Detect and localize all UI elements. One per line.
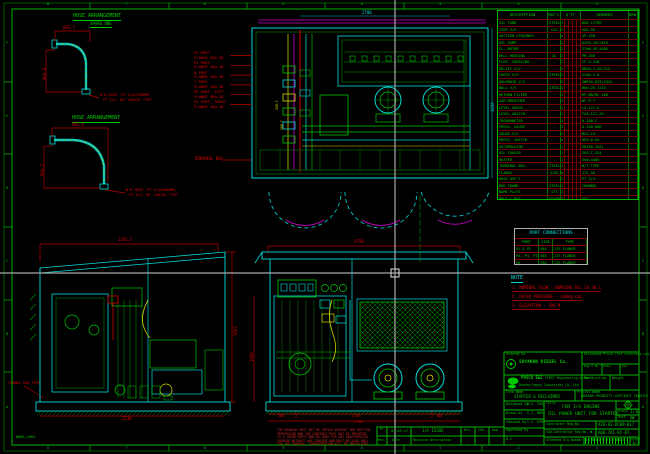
port-conn-row: P1 & P250AJIS FLANGE	[515, 245, 587, 252]
bom-cell	[629, 196, 638, 201]
ruler-letter-left: A	[6, 406, 8, 410]
bom-cell: HED-8-OA	[581, 137, 629, 143]
bom-cell: 0-100'C	[581, 118, 629, 124]
bom-cell: AL	[548, 53, 561, 59]
note-item: 1. NOMINAL FLOW - WORKING OIL 50 40 L	[512, 286, 601, 292]
revision-desc: 1st ISSUE	[422, 429, 444, 433]
bom-cell: STEEL	[548, 85, 561, 91]
port-conn-header-row: PORTSIZETYPE	[515, 238, 587, 245]
bom-cell	[629, 66, 638, 72]
bom-cell: BALL V/V	[498, 85, 548, 91]
tb-stamp-icon: ✱	[590, 430, 592, 434]
hose-arrangement-2	[44, 128, 125, 193]
tb-sign-name: Y.S. KIM	[527, 421, 543, 425]
front-view	[254, 246, 473, 421]
bom-cell: TERMINAL BOX	[498, 163, 548, 169]
tb-weight-label: Weight	[612, 377, 624, 380]
bom-row: FLANGES25C6JIS 5K	[498, 169, 638, 176]
bom-cell: -	[548, 157, 561, 163]
bom-cell: FLANGE	[498, 170, 548, 176]
bom-cell: -	[548, 46, 561, 52]
tb-matl-value: -	[598, 382, 600, 386]
port-conn-cell: 50A	[539, 246, 553, 252]
bom-row: RELIEF V/V-2DB20-2-50/315	[498, 65, 638, 72]
tb-matl-label: Mat'l	[584, 377, 594, 380]
bom-cell: -	[548, 118, 561, 124]
bom-cell: CF-A-110	[581, 59, 629, 65]
tb-est-label: Estimated Price (for reference use)	[584, 353, 650, 356]
bom-cell: BKH-20-1113	[581, 85, 629, 91]
notes-title: NOTE	[511, 276, 523, 283]
bom-row: TERMINAL BOXSTEEL1W/T TYPE	[498, 162, 638, 169]
ruler-letter-right: E	[642, 115, 644, 119]
tb-mini-label: Date	[603, 365, 610, 368]
bom-cell	[629, 20, 638, 26]
tb-unit-label: Unit	[618, 416, 626, 419]
plan-dim-right: 1650	[491, 102, 495, 112]
bom-cell: SS400	[548, 196, 561, 201]
bom-cell: -	[548, 92, 561, 98]
port-conn-cell: P6	[515, 260, 539, 265]
side-view	[24, 244, 236, 416]
bom-cell	[629, 111, 638, 117]
tb-sign-name: S.I. WOO	[527, 412, 543, 416]
bom-row: HEATER-13kW-440V	[498, 156, 638, 163]
bom-cell: FLEX. COUPLING	[498, 59, 548, 65]
ruler-letter-left: C	[6, 260, 8, 264]
bom-cell: -	[548, 150, 561, 156]
bom-cell: BV2-10	[581, 131, 629, 137]
bom-cell: EL. MOTOR	[498, 46, 548, 52]
bom-row: PRESS. SWITCH-2HED-8-OA	[498, 136, 638, 143]
tb-sign-label: Approved by	[506, 429, 528, 433]
bom-cell: BF-P-7	[581, 98, 629, 104]
bom-cell: SUS-T-424	[581, 150, 629, 156]
ruler-number-top: 5	[282, 3, 284, 7]
bom-cell	[629, 170, 638, 176]
bom-cell: CAC	[548, 27, 561, 33]
tb-contractor-value: ATD-03-DC09-017	[598, 423, 634, 427]
bom-cell: -	[548, 66, 561, 72]
ruler-letter-right: C	[642, 260, 644, 264]
front-dim-top: 2750	[354, 240, 364, 244]
hose-arrangement-1	[46, 31, 99, 98]
tb-est-value: -	[608, 358, 610, 362]
bom-row: BOLT & NUTSS4001SET	[498, 195, 638, 201]
bom-cell: STEEL	[548, 183, 561, 189]
bom-cell: 3kW-440V	[581, 157, 629, 163]
bom-row: LEVEL GAUGE-1LS-127-A	[498, 104, 638, 111]
tb-subcontractor-label: Sub-Contractor Reg.No.	[546, 431, 588, 434]
ruler-letter-left: F	[6, 42, 8, 46]
revision-col-rev: Rev.	[378, 439, 386, 442]
bom-cell: RETURN FILTER	[498, 92, 548, 98]
bom-cell: HEATER	[498, 157, 548, 163]
hose1-subtitle: SPARE ONE	[90, 22, 112, 28]
ruler-number-bottom: 2	[517, 447, 519, 451]
posco-logo-icon	[508, 378, 519, 385]
bom-cell: PM-350	[581, 53, 629, 59]
side-flange-label: FLANGE 50A TYPE	[8, 382, 40, 386]
port-flange-label: FLANGE 50A-5K	[194, 105, 224, 109]
bom-cell: 800 LITER	[581, 20, 629, 26]
bom-cell: -	[548, 131, 561, 137]
bom-cell	[629, 53, 638, 59]
bom-cell: -	[548, 111, 561, 117]
port-conn-cell: JIS FLANGE	[553, 260, 587, 265]
bom-table: DESCRIPTIONMAT'LQ'TYREMARKSDRW'G NOOIL T…	[497, 10, 639, 200]
bom-cell: -	[581, 189, 629, 195]
bom-cell	[629, 163, 638, 169]
tb-sign-name: H.S. CHA	[527, 403, 543, 407]
revision-col-date: Date	[392, 439, 400, 442]
bom-cell: STEEL	[548, 20, 561, 26]
plan-dim-a: 150.3	[276, 100, 279, 110]
ruler-number-bottom: 4	[361, 447, 363, 451]
bom-row: OIL TANKSTEEL1800 LITER	[498, 19, 638, 26]
hose2-dim-w: 905.5	[72, 123, 84, 127]
front-dim-total: 2750	[354, 421, 362, 425]
bom-cell	[629, 72, 638, 78]
revision-sign-val: -	[481, 439, 483, 443]
bom-cell: 37kW-4P-440V	[581, 46, 629, 52]
bom-cell: STOP V/V	[498, 27, 548, 33]
port-connections-title: PORT CONNECTIONS	[515, 229, 587, 238]
bom-cell	[629, 59, 638, 65]
bom-cell: CHECK V/V	[498, 72, 548, 78]
revision-date: '04.03.17	[389, 430, 408, 434]
tb-eng-brand: POSCO E&C	[521, 376, 543, 380]
tb-std-label: Standard Drg Number	[546, 439, 582, 442]
hose1-dim-w: 605.7	[63, 26, 75, 30]
ruler-number-top: 6	[204, 3, 206, 7]
bom-cell	[629, 27, 638, 33]
bom-cell: LEVEL SWITCH	[498, 111, 548, 117]
ruler-number-top: 1	[596, 3, 598, 7]
bom-cell: -	[548, 144, 561, 150]
ruler-letter-right: A	[642, 406, 644, 410]
door-swing-arcs	[269, 192, 489, 262]
bom-cell	[629, 118, 638, 124]
port-conn-cell: P3, P4, P5	[515, 253, 539, 259]
ruler-number-bottom: 6	[204, 447, 206, 451]
port-conn-row: P625AJIS FLANGE	[515, 259, 587, 265]
tb-mini-label: Dwg'd By	[584, 365, 598, 368]
port-conn-header-cell: SIZE	[539, 239, 553, 245]
bom-cell	[629, 33, 638, 39]
bom-cell: HOSE ASS'Y	[498, 176, 548, 182]
bom-cell	[629, 137, 638, 143]
ruler-letter-left: B	[6, 333, 8, 337]
bom-cell	[629, 92, 638, 98]
ruler-number-top: 4	[361, 3, 363, 7]
bom-row: LEVEL SWITCH-1FSA-127-2X	[498, 110, 638, 117]
bom-header-cell: DESCRIPTION	[498, 11, 548, 19]
bom-cell: NAME PLATE	[498, 189, 548, 195]
warning-line: FOR THE PURPOSE. CONTRAVENTION WILL BE P…	[277, 443, 370, 446]
tb-ordered-label: Ordered by	[506, 353, 525, 356]
bom-cell: FSA-127-2X	[581, 111, 629, 117]
bom-cell: OIL COOLER	[498, 150, 548, 156]
front-dim-b1: 300	[278, 415, 284, 419]
corner-label: WORK-2004	[16, 436, 35, 440]
ruler-letter-right: F	[642, 42, 644, 46]
tb-mini-value: -	[609, 370, 611, 374]
bom-cell: -	[548, 98, 561, 104]
bom-cell	[629, 189, 638, 195]
revision-sign-val: -	[495, 439, 497, 443]
bom-row: NAME PLATESTS1-	[498, 188, 638, 195]
bom-row: PRESS. GAUGE-30-250 BAR	[498, 123, 638, 130]
bom-cell: THERMOMETER	[498, 118, 548, 124]
tb-title-line2: OIL POWER UNIT FOR STARTER	[548, 413, 618, 418]
bom-cell: -	[548, 137, 561, 143]
bom-cell: STS	[548, 189, 561, 195]
bom-cell: JIS 5K	[581, 170, 629, 176]
note-item: 3. ELEVATION : 700 M	[512, 304, 560, 310]
bom-row: HOSE ASS'Y-2PT 3/4	[498, 175, 638, 182]
port-flange-label: FLANGE 50A-5K	[194, 56, 224, 60]
bom-cell: PT 3/4	[581, 176, 629, 182]
ruler-number-bottom: 3	[439, 447, 441, 451]
tb-mini-value: -	[628, 370, 630, 374]
ruler-number-bottom: 8	[47, 447, 49, 451]
ruler-letter-right: B	[642, 333, 644, 337]
port-conn-header-cell: PORT	[515, 239, 539, 245]
tb-eng-name: FIRST Engineering & Construction	[545, 377, 606, 380]
bom-cell: A2F0-107/61R	[581, 40, 629, 46]
bom-header-cell: DRW'G NO	[629, 11, 638, 19]
port-conn-cell: JIS FLANGE	[553, 246, 587, 252]
side-dim-bottom: 2130	[122, 417, 132, 421]
revision-sign-col: Drw	[464, 429, 470, 432]
bom-row: BALL V/VSTEEL4BKH-20-1113	[498, 84, 638, 91]
bom-row: OIL COOLER-1SUS-T-424	[498, 149, 638, 156]
bom-cell: BELL HOUSING	[498, 53, 548, 59]
hose2-dim-h: 550.7	[41, 164, 45, 176]
tb-sign-label: Designed by	[506, 403, 528, 407]
tb-sign-label: Q.C.	[506, 438, 514, 442]
tb-item-value: STARTER & RECLAIMER	[514, 395, 560, 399]
ruler-number-bottom: 5	[282, 447, 284, 451]
bom-header-cell: Q'TY	[561, 11, 581, 19]
bom-row: OIL PUMP-2A2F0-107/61R	[498, 39, 638, 46]
tb-scale-value: 1/10	[630, 410, 640, 414]
tb-sign-label: Drawn by	[506, 412, 522, 416]
port-conn-cell: 40A	[539, 253, 553, 259]
tb-sign-label: Checked by	[506, 421, 526, 425]
bom-cell: SP-100	[581, 33, 629, 39]
revision-sign-val: -	[467, 439, 469, 443]
plan-dim-top: 2700	[362, 11, 372, 15]
bom-cell	[629, 98, 638, 104]
bom-cell: LS-127-A	[581, 105, 629, 111]
tb-barcode: 170409417064130	[585, 438, 629, 444]
bom-row: ACCUMULATOR-1SB330-32A1	[498, 143, 638, 150]
tb-sign-name: -	[527, 429, 529, 433]
tb-mini-label: Rev.	[622, 365, 629, 368]
hose2-note-2: PT 3/4, 90' SWIVEL TYPE	[129, 194, 177, 198]
revision-sign-col: App	[492, 429, 498, 432]
hose1-note-2: PT 3/4, 90' SWIVEL TYPE	[103, 99, 151, 103]
bom-header-row: DESCRIPTIONMAT'LQ'TYREMARKSDRW'G NO	[498, 11, 638, 19]
bom-cell: 4WE10-D33/CG24	[581, 79, 629, 85]
bom-row: EL. MOTOR-237kW-4P-440V	[498, 45, 638, 52]
bom-row: SUCTION STRAINER-2SP-100	[498, 32, 638, 39]
ruler-number-top: 2	[517, 3, 519, 7]
hose1-dim-h: 450.8	[43, 68, 47, 80]
tb-weight-value: -	[628, 382, 630, 386]
bom-row: BED FRAMESTEEL1CHANNEL	[498, 182, 638, 189]
tb-unit-value: mm	[630, 416, 635, 420]
side-dim-right: 1563	[234, 326, 238, 336]
tb-project-value: DOOSAN PRIORITY-AIRTIGHT SERVICE	[581, 395, 648, 399]
tb-scale-label: Scale	[618, 410, 628, 413]
tb-mini-value: -	[590, 370, 592, 374]
port-conn-cell: JIS FLANGE	[553, 253, 587, 259]
cad-canvas[interactable]: HOSE ARRANGEMENT SPARE ONE 605.7 450.8 W…	[0, 0, 650, 454]
bom-row: FLEX. COUPLING-2CF-A-110	[498, 58, 638, 65]
front-dim-b2: 2150	[352, 415, 360, 419]
bom-cell: STEEL	[548, 163, 561, 169]
revision-sign-col: Chk	[478, 429, 484, 432]
bom-row: STOP V/VCAC250A-5K	[498, 26, 638, 33]
bom-header-cell: REMARKS	[581, 11, 629, 19]
tb-eng2-name: Doosan Heavy Industries Co.,Ltd	[519, 384, 579, 387]
bom-cell: SUCTION STRAINER	[498, 33, 548, 39]
bom-cell: PRESS. SWITCH	[498, 137, 548, 143]
tb-sign-name: -	[527, 438, 529, 442]
bom-cell: RF-BN/HC-160	[581, 92, 629, 98]
port-conn-cell: 25A	[539, 260, 553, 265]
bom-cell: OIL TANK	[498, 20, 548, 26]
bom-cell	[629, 79, 638, 85]
bom-cell: -	[548, 105, 561, 111]
bom-row: SOLENOID V/V-24WE10-D33/CG24	[498, 78, 638, 85]
bom-header-cell: MAT'L	[548, 11, 561, 19]
bom-cell	[629, 150, 638, 156]
bom-cell	[629, 157, 638, 163]
terminal-box-label: TERMINAL BOX	[194, 157, 223, 161]
bom-cell: DB20-2-50/315	[581, 66, 629, 72]
ruler-number-top: 7	[125, 3, 127, 7]
bom-cell: RELIEF V/V	[498, 66, 548, 72]
bom-cell	[629, 124, 638, 130]
bom-cell: SET	[581, 196, 629, 201]
revision-rev: A	[380, 428, 383, 433]
bom-cell: AIR BREATHER	[498, 98, 548, 104]
bom-cell: STEEL	[548, 72, 561, 78]
bom-cell: -	[548, 33, 561, 39]
bom-cell	[629, 46, 638, 52]
bom-cell: 50A-5K	[581, 27, 629, 33]
ruler-letter-left: E	[6, 115, 8, 119]
tb-company: SOYAKAN DIESEL Co.	[519, 361, 568, 366]
plan-dim-b: 100.7	[281, 120, 284, 130]
bom-cell	[629, 144, 638, 150]
bom-cell: -	[548, 40, 561, 46]
bom-cell	[629, 40, 638, 46]
bom-cell: ACCUMULATOR	[498, 144, 548, 150]
bom-cell	[629, 85, 638, 91]
bom-cell: -	[548, 124, 561, 130]
bom-cell: SB330-32A1	[581, 144, 629, 150]
bom-cell	[629, 183, 638, 189]
port-connections-table: PORT CONNECTIONSPORTSIZETYPEP1 & P250AJI…	[514, 228, 588, 265]
tb-subcontractor-value: A06-7A1-01-07	[598, 431, 629, 435]
bom-cell	[629, 105, 638, 111]
bom-cell: -	[548, 59, 561, 65]
port-conn-header-cell: TYPE	[553, 239, 587, 245]
bom-row: THERMOMETER-10-100'C	[498, 117, 638, 124]
ruler-number-bottom: 7	[125, 447, 127, 451]
bom-cell: OIL PUMP	[498, 40, 548, 46]
port-conn-row: P3, P4, P540AJIS FLANGE	[515, 252, 587, 259]
bom-cell: CHANNEL	[581, 183, 629, 189]
tb-title-label: Title	[546, 402, 556, 405]
ruler-number-top: 8	[47, 3, 49, 7]
tb-title-line1: FOR 1/4 ENGINE	[562, 406, 600, 411]
side-dim-top: 2285.5	[118, 238, 132, 242]
tb-contractor-label: Contractor Reg.No.	[546, 423, 581, 426]
bom-cell: -	[548, 79, 561, 85]
bom-row: RETURN FILTER-1RF-BN/HC-160	[498, 91, 638, 98]
bom-cell: GAUGE V/V	[498, 131, 548, 137]
bom-cell: PRESS. GAUGE	[498, 124, 548, 130]
bom-row: GAUGE V/V-3BV2-10	[498, 130, 638, 137]
bom-row: AIR BREATHER-1BF-P-7	[498, 97, 638, 104]
bom-cell: W/T TYPE	[581, 163, 629, 169]
bom-cell: S20A-1.0	[581, 72, 629, 78]
ruler-number-top: 3	[439, 3, 441, 7]
ruler-letter-left: D	[6, 187, 8, 191]
bom-cell: -	[548, 176, 561, 182]
port-conn-cell: P1 & P2	[515, 246, 539, 252]
ruler-letter-right: D	[642, 187, 644, 191]
bom-cell	[629, 131, 638, 137]
bom-cell: LEVEL GAUGE	[498, 105, 548, 111]
bom-cell: BOLT & NUT	[498, 196, 548, 201]
bom-cell	[629, 176, 638, 182]
bom-cell: BED FRAME	[498, 183, 548, 189]
front-dim-b3: 300	[436, 415, 442, 419]
tb-sheet-value: 1/1	[632, 441, 639, 445]
bom-row: BELL HOUSINGAL2PM-350	[498, 52, 638, 59]
doosan-leaf-icon	[508, 385, 516, 389]
bom-row: CHECK V/VSTEEL2S20A-1.0	[498, 71, 638, 78]
port-flange-label: FLANGE 50A-5K	[194, 65, 224, 69]
bom-cell: S25C	[548, 170, 561, 176]
plan-view	[222, 16, 492, 178]
front-dim-left: 1050	[250, 352, 254, 362]
bom-cell: 0-250 BAR	[581, 124, 629, 130]
bom-cell: SOLENOID V/V	[498, 79, 548, 85]
revision-col-desc: Revision Description	[413, 439, 451, 442]
ruler-number-bottom: 1	[596, 447, 598, 451]
note-item: 2. RATED PRESSURE - 140kg/cm2	[512, 295, 582, 301]
